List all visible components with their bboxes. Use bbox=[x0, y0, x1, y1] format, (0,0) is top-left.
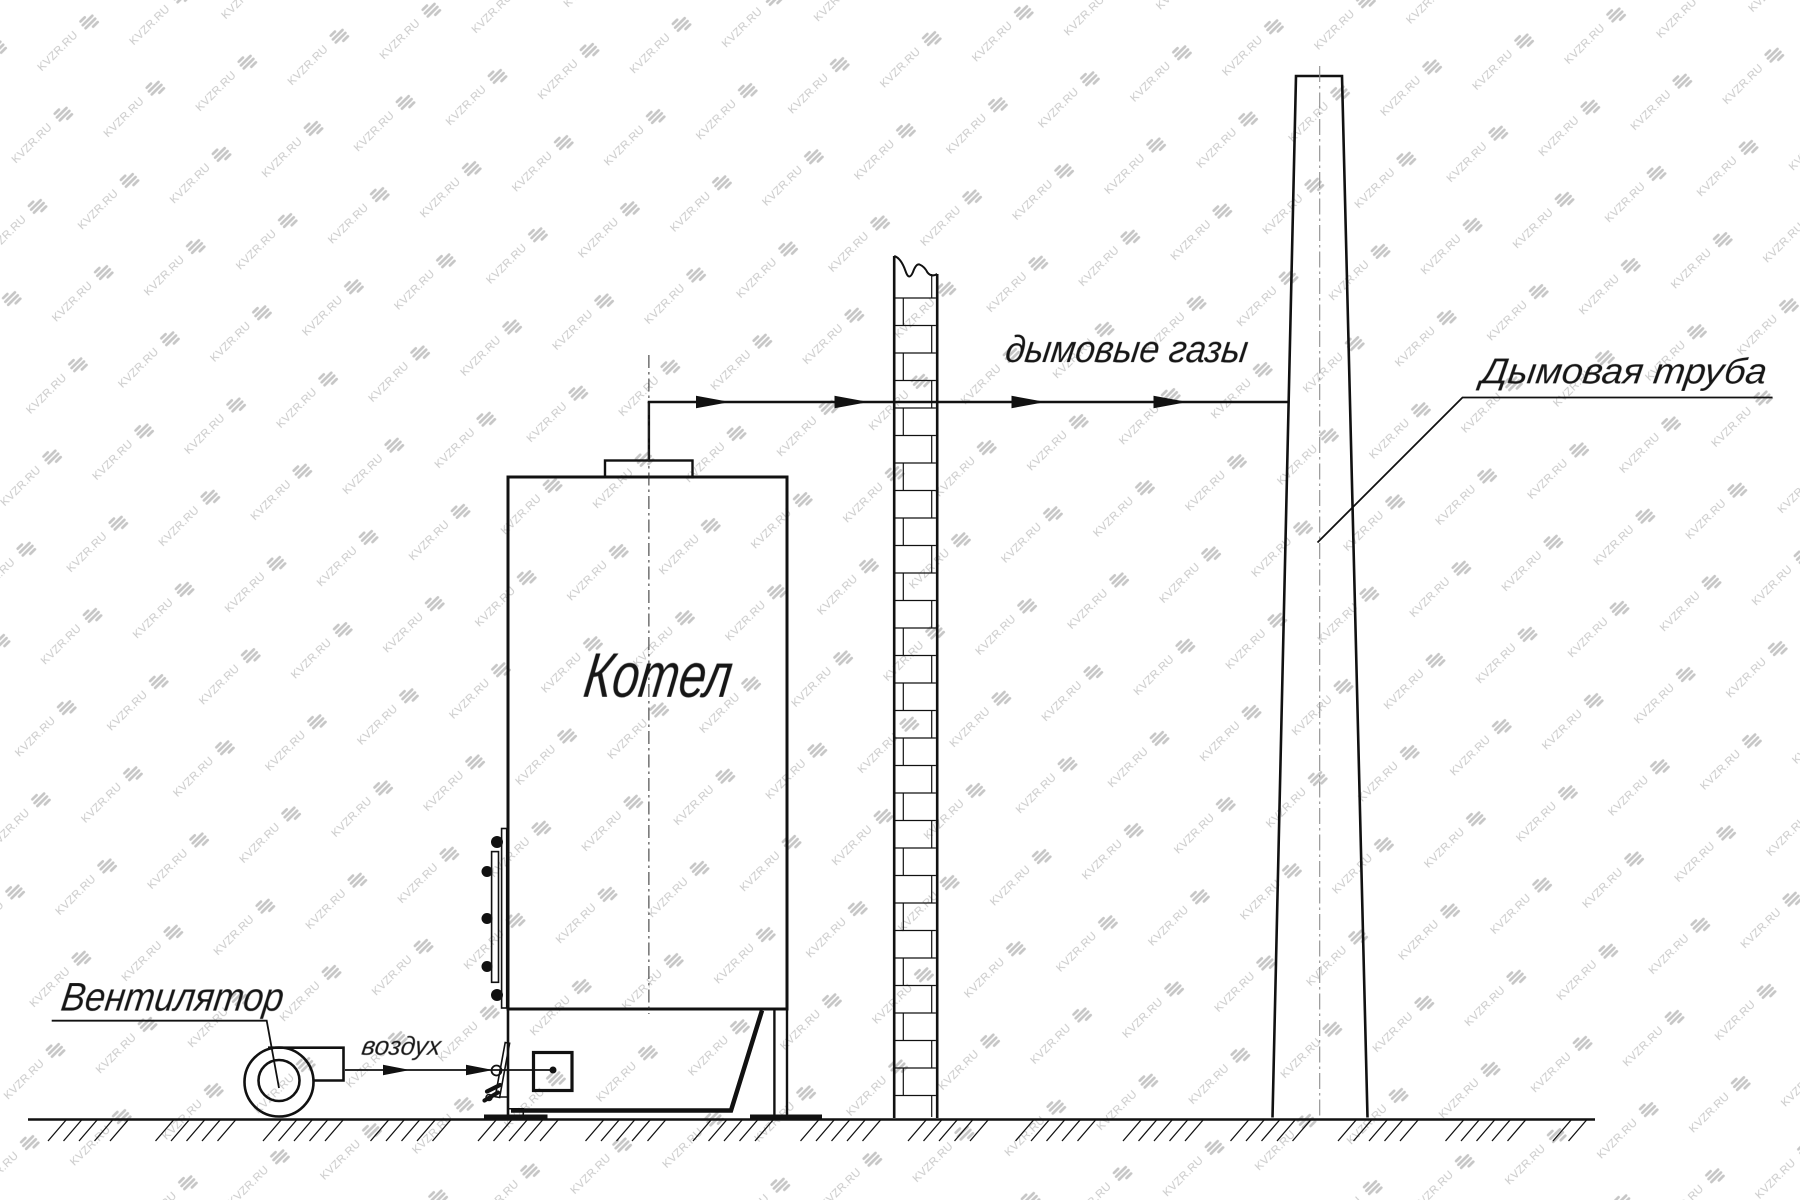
svg-text:Дымовая труба: Дымовая труба bbox=[1475, 350, 1770, 391]
svg-text:Котел: Котел bbox=[580, 641, 737, 711]
svg-text:дымовые газы: дымовые газы bbox=[1003, 329, 1251, 371]
svg-text:воздух: воздух bbox=[360, 1031, 444, 1061]
svg-text:Вентилятор: Вентилятор bbox=[59, 976, 287, 1020]
